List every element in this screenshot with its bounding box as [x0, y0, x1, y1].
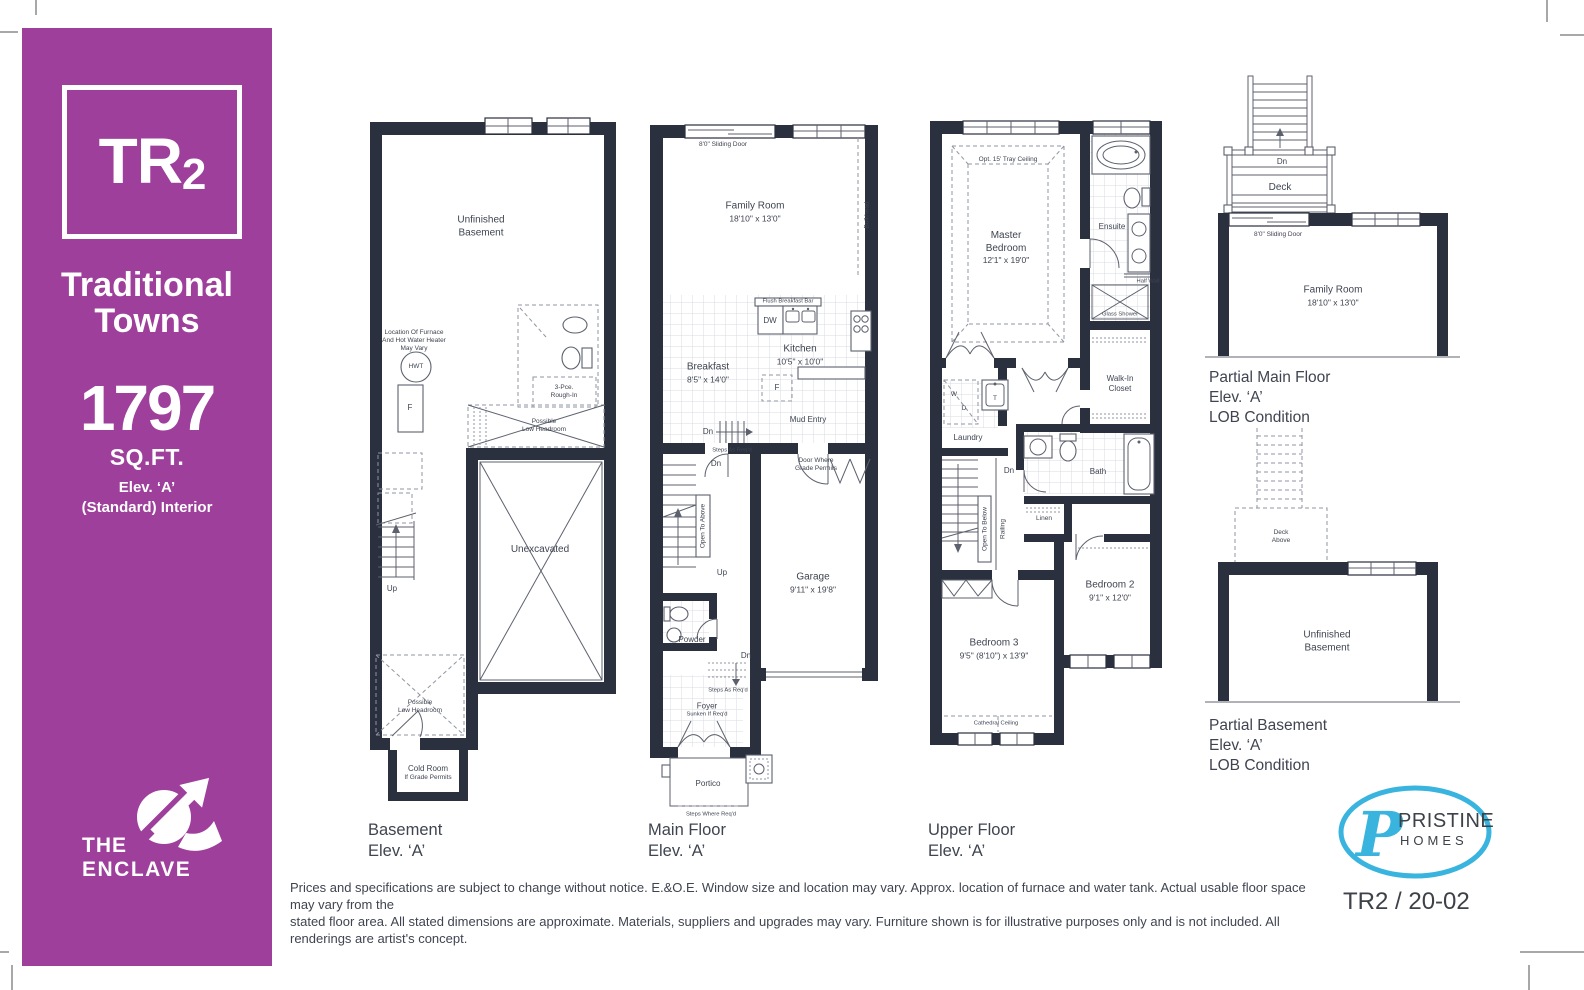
sink-icon: [563, 317, 587, 333]
label-washer: W: [951, 391, 957, 399]
double-sink-icon: [783, 306, 817, 334]
label-cold-room: Cold Room If Grade Permits: [404, 764, 451, 782]
series-name: Traditional Towns: [22, 268, 272, 339]
main-floor-caption: Main Floor Elev. ‘A’: [648, 820, 726, 862]
label-glass-shower: Glass Shower: [1102, 311, 1138, 318]
stove-icon: [851, 311, 871, 351]
label-rough-in: 3-Pce. Rough-In: [551, 384, 578, 400]
community-name-enclave: ENCLAVE: [82, 858, 191, 882]
basement-floorplan: Unfinished Basement Location Of Furnace …: [368, 115, 618, 827]
disclaimer-text: Prices and specifications are subject to…: [290, 879, 1315, 948]
label-dn-a: Dn: [703, 427, 713, 437]
label-steps-a: Steps As Req'd: [712, 447, 751, 454]
label-unfinished-basement: Unfinished Basement: [457, 215, 504, 240]
label-kitchen: Kitchen 10'5" x 10'0": [777, 343, 824, 366]
vanity-sinks-icon: [1128, 214, 1150, 272]
toilet-icon: [664, 607, 688, 621]
partial-main-drawing: [1205, 72, 1460, 372]
foyer-steps: [708, 663, 748, 677]
partial-basement-drawing: [1205, 420, 1460, 720]
label-ensuite: Ensuite: [1099, 222, 1126, 232]
label-mud-entry: Mud Entry: [790, 415, 826, 425]
label-linen: Linen: [1036, 515, 1052, 523]
partial-main-caption: Partial Main Floor Elev. ‘A’ LOB Conditi…: [1209, 368, 1330, 427]
label-garage: Garage 9'11" x 19'8": [790, 571, 836, 594]
label-sliding-door: 8'0" Sliding Door: [699, 141, 747, 149]
label-dn: Dn: [1004, 466, 1014, 476]
label-furnace: F: [408, 403, 413, 413]
label-family-room: Family Room 18'10" x 13'0": [1304, 284, 1363, 307]
upper-floor-floorplan: Opt. 15' Tray Ceiling Master Bedroom 12'…: [928, 108, 1168, 768]
label-flush-breakfast-bar: Flush Breakfast Bar: [763, 298, 814, 305]
label-dn-c: Dn: [741, 651, 751, 661]
label-fridge: F: [775, 383, 780, 393]
partial-main-floorplan: Dn Deck 8'0" Sliding Door Family Room 18…: [1205, 72, 1460, 372]
label-family-room: Family Room 18'10" x 13'0": [726, 200, 785, 223]
toilet-icon: [562, 347, 592, 369]
label-walk-in-closet: Walk-In Closet: [1107, 374, 1134, 394]
bathtub-icon: [1092, 136, 1150, 174]
label-bath: Bath: [1090, 467, 1106, 477]
label-dishwasher: DW: [763, 316, 776, 326]
crop-mark: [1520, 951, 1584, 953]
toilet-icon: [1060, 434, 1076, 461]
crop-mark: [1546, 0, 1548, 22]
crop-mark: [1528, 965, 1530, 990]
label-sliding-door: 8'0" Sliding Door: [1254, 231, 1302, 239]
sidebar: TR2 Traditional Towns 1797 SQ.FT. Elev. …: [22, 28, 272, 966]
partial-basement-floorplan: Deck Above Unfinished Basement: [1205, 420, 1460, 720]
label-bulkhead: Bulkhead: [864, 201, 871, 228]
model-code-box: TR2: [62, 85, 242, 239]
crop-mark: [1560, 34, 1584, 36]
label-steps-b: Steps As Req'd: [708, 687, 747, 694]
label-bedroom-3: Bedroom 3 9'5" (8'10") x 13'9": [960, 637, 1029, 660]
label-dryer: D: [962, 405, 967, 413]
label-furnace-note: Location Of Furnace And Hot Water Heater…: [382, 329, 446, 353]
square-footage-label: SQ.FT.: [22, 444, 272, 471]
brand-name: PRISTINE: [1398, 810, 1494, 833]
label-up: Up: [717, 568, 727, 578]
label-dn: Dn: [1277, 157, 1287, 167]
label-foyer: Foyer Sunken If Req'd: [686, 701, 727, 718]
label-master-bedroom: Master Bedroom 12'1" x 19'0": [983, 230, 1030, 266]
label-door-grade: Door Where Grade Permits: [795, 457, 837, 473]
elevation-label: Elev. ‘A’ (Standard) Interior: [22, 478, 272, 519]
pristine-homes-logo: P PRISTINE HOMES: [1336, 784, 1494, 884]
label-deck-above: Deck Above: [1272, 529, 1290, 545]
bathtub-icon: [1124, 434, 1154, 494]
partial-basement-caption: Partial Basement Elev. ‘A’ LOB Condition: [1209, 716, 1327, 775]
enclave-arrow-icon: [128, 761, 230, 859]
label-dn-b: Dn: [711, 459, 721, 469]
label-breakfast: Breakfast 8'5" x 14'0": [687, 361, 729, 384]
pristine-p-icon: P: [1354, 798, 1405, 871]
plan-code: TR2 / 20-02: [1343, 888, 1470, 916]
pillar-icon: [746, 755, 772, 783]
label-tray-ceiling: Opt. 15' Tray Ceiling: [979, 156, 1038, 164]
label-powder: Powder: [678, 635, 705, 645]
brand-subname: HOMES: [1400, 833, 1468, 848]
label-portico: Portico: [696, 779, 721, 789]
label-railing: Railing: [1000, 519, 1007, 539]
label-laundry: Laundry: [954, 433, 983, 443]
square-footage: 1797: [22, 376, 272, 440]
crop-mark: [0, 951, 9, 953]
label-unfinished-basement: Unfinished Basement: [1303, 630, 1350, 655]
crop-mark: [11, 965, 13, 990]
label-hwt: HWT: [409, 363, 424, 371]
label-low-headroom-a: Possible Low Headroom: [522, 418, 566, 434]
community-name-the: THE: [82, 834, 127, 858]
toilet-icon: [1124, 188, 1150, 208]
label-open-to-below: Open To Below: [982, 507, 989, 551]
floorplan-brochure-page: TR2 Traditional Towns 1797 SQ.FT. Elev. …: [0, 0, 1584, 990]
crop-mark: [35, 0, 37, 15]
label-half-wall: Half Wall: [1137, 278, 1160, 285]
upper-floor-caption: Upper Floor Elev. ‘A’: [928, 820, 1015, 862]
basement-caption: Basement Elev. ‘A’: [368, 820, 442, 862]
crop-mark: [0, 31, 18, 33]
label-open-to-above: Open To Above: [700, 504, 707, 548]
label-cathedral-ceiling: Cathedral Ceiling: [974, 720, 1018, 727]
label-unexcavated: Unexcavated: [511, 544, 569, 557]
label-bedroom-2: Bedroom 2 9'1" x 12'0": [1086, 579, 1135, 602]
label-up: Up: [387, 584, 397, 594]
model-code: TR2: [99, 124, 206, 200]
main-floor-floorplan: 8'0" Sliding Door Family Room 18'10" x 1…: [648, 115, 880, 820]
sink-icon: [1024, 436, 1052, 458]
label-low-headroom-b: Possible Low Headroom: [398, 699, 442, 715]
stairs-above-dashed: [1257, 428, 1302, 508]
label-steps-where: Steps Where Req'd: [686, 811, 736, 818]
label-deck: Deck: [1269, 182, 1292, 195]
label-laundry-tub: T: [993, 395, 997, 403]
exterior-stairs: [1248, 76, 1312, 152]
